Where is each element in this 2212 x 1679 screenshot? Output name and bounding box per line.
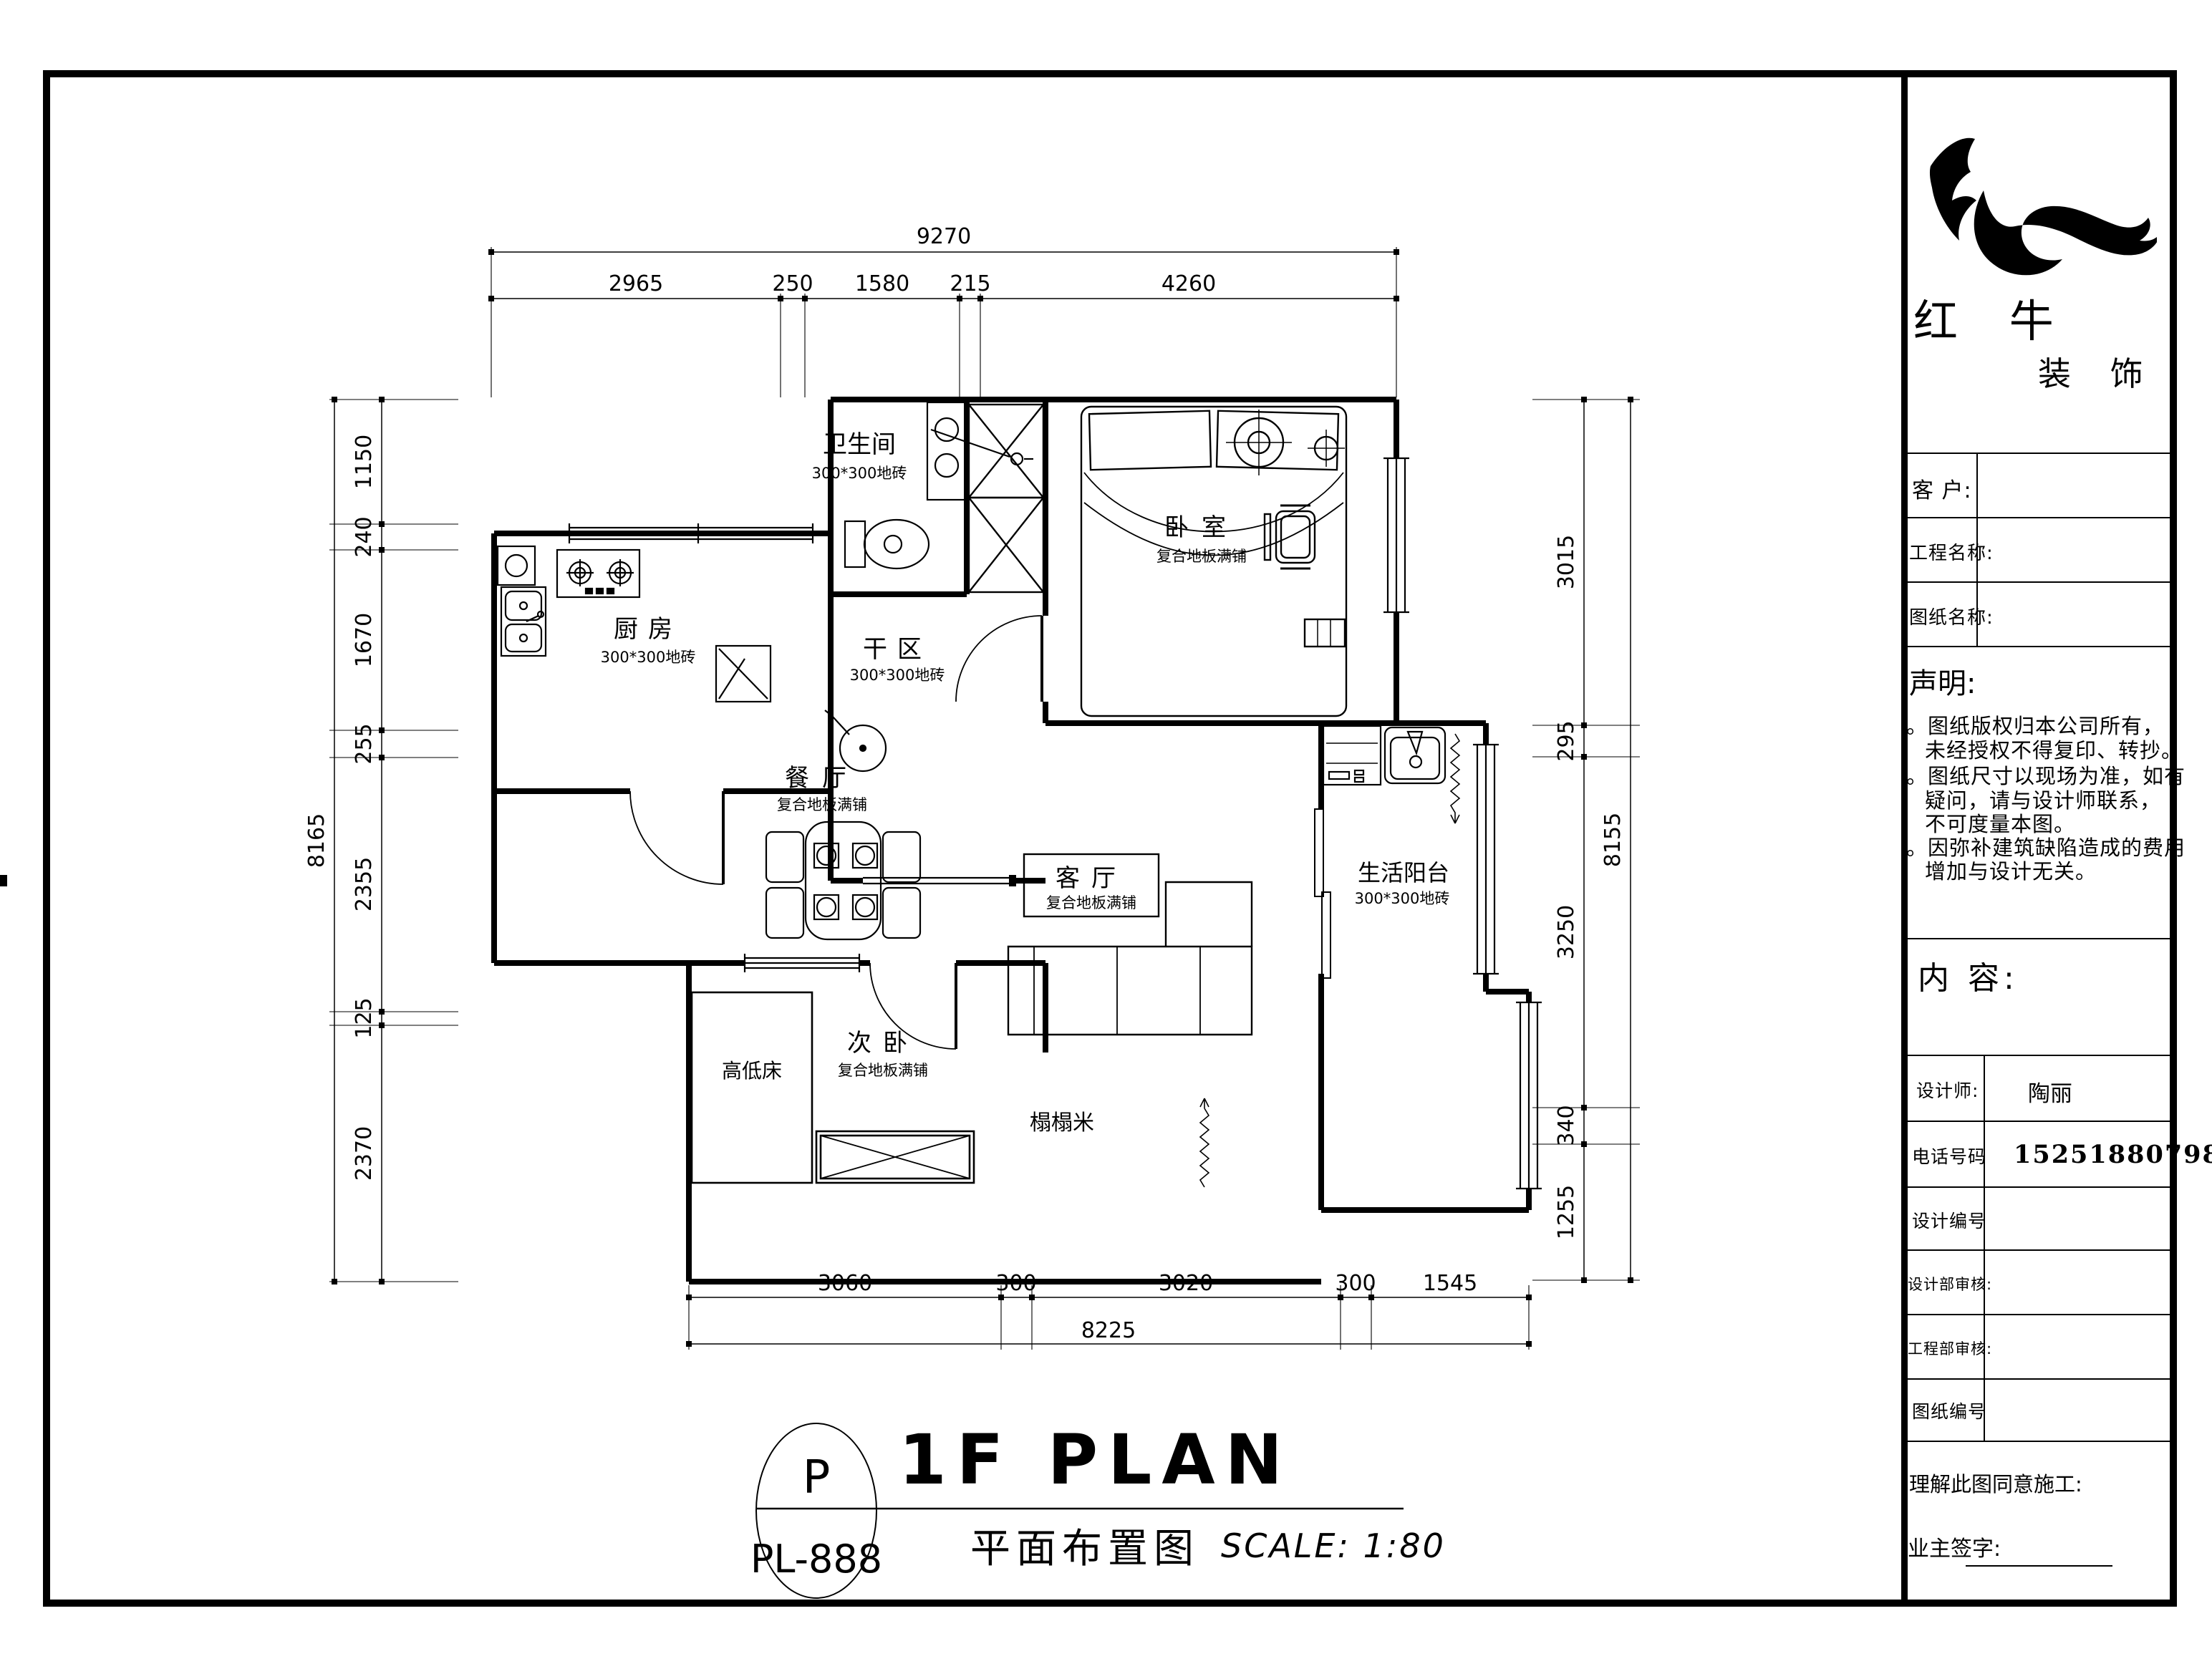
- plan-scale: SCALE: 1:80: [1221, 1526, 1446, 1565]
- room-floor-balcony: 300*300地砖: [1355, 890, 1450, 907]
- room-label-tatami: 榻榻米: [1030, 1111, 1094, 1136]
- plan-title-cn: 平面布置图: [970, 1526, 1199, 1572]
- room-label-dining: 餐厅: [785, 764, 859, 793]
- room-floor-kitchen: 300*300地砖: [601, 649, 696, 666]
- room-floor-dining: 复合地板满铺: [777, 796, 867, 813]
- bottom-rooms-furniture: [692, 992, 1209, 1187]
- pillow: [1089, 411, 1211, 470]
- svg-text:2965: 2965: [609, 271, 663, 296]
- room-label-balcony: 生活阳台: [1358, 859, 1449, 886]
- svg-text:300: 300: [1335, 1271, 1376, 1296]
- dining-chair: [766, 832, 803, 882]
- shower-arm: [931, 430, 1010, 457]
- svg-text:3015: 3015: [1554, 535, 1579, 589]
- room-floor-bedroom: 复合地板满铺: [1156, 548, 1247, 565]
- room-label-kitchen: 厨房: [614, 615, 682, 644]
- svg-text:240: 240: [352, 516, 377, 557]
- dim-right-total: 8155: [1600, 813, 1626, 867]
- svg-text:125: 125: [352, 997, 377, 1038]
- kitchen-flue: [498, 546, 535, 585]
- svg-text:300: 300: [995, 1271, 1036, 1296]
- room-floor-dry: 300*300地砖: [850, 667, 945, 684]
- svg-text:2355: 2355: [352, 857, 377, 911]
- bath-vanity: [927, 402, 967, 500]
- svg-text:4260: 4260: [1161, 271, 1216, 296]
- svg-text:1150: 1150: [352, 435, 377, 489]
- dining-chair: [883, 888, 920, 938]
- dry-area-basin: [825, 710, 886, 771]
- svg-text:2370: 2370: [352, 1126, 377, 1181]
- desk-edge: [1265, 514, 1270, 560]
- svg-text:340: 340: [1554, 1105, 1579, 1146]
- walls: [494, 400, 1529, 1282]
- svg-text:3020: 3020: [1159, 1271, 1213, 1296]
- dimension-lines: [329, 247, 1640, 1350]
- sheet-code-letter: P: [803, 1451, 831, 1504]
- svg-text:295: 295: [1554, 720, 1579, 761]
- svg-text:1255: 1255: [1554, 1185, 1579, 1239]
- tap: [1408, 732, 1422, 753]
- sofa-chaise: [1166, 882, 1252, 947]
- dim-left-total: 8165: [304, 813, 329, 868]
- room-label-bedroom: 卧室: [1164, 513, 1239, 542]
- floorplan-canvas: 卫生间 300*300地砖 干区 300*300地砖 厨房 300*300地砖 …: [0, 0, 2212, 1679]
- room-floor-bath: 300*300地砖: [812, 465, 907, 482]
- room-label-living: 客厅: [1056, 864, 1127, 893]
- room-label-bath: 卫生间: [823, 430, 896, 459]
- svg-text:1545: 1545: [1423, 1271, 1477, 1296]
- washing-machine: [1323, 726, 1381, 785]
- room-label-second: 次卧: [847, 1029, 919, 1058]
- dimension-ticks: [332, 249, 1633, 1347]
- svg-text:3250: 3250: [1554, 905, 1579, 959]
- bunk-bed: [692, 992, 812, 1183]
- threshold-step: [1305, 619, 1345, 647]
- svg-text:1670: 1670: [352, 613, 377, 667]
- balcony-fixtures: [1323, 726, 1459, 823]
- dim-bottom-total: 8225: [1081, 1318, 1136, 1343]
- dining-chair: [766, 888, 803, 938]
- room-floor-living: 复合地板满铺: [1046, 894, 1136, 911]
- dining-chair: [883, 832, 920, 882]
- plan-title-en: 1F PLAN: [899, 1420, 1293, 1500]
- room-label-dry: 干区: [863, 635, 932, 664]
- room-label-bunk: 高低床: [722, 1059, 782, 1083]
- svg-text:215: 215: [950, 271, 990, 296]
- sheet-code: PL-888: [750, 1537, 882, 1582]
- room-floor-second: 复合地板满铺: [838, 1062, 928, 1079]
- dim-top-total: 9270: [917, 224, 971, 249]
- svg-text:255: 255: [352, 723, 377, 764]
- svg-text:1580: 1580: [855, 271, 909, 296]
- door-symbols: [630, 616, 1330, 1049]
- toilet-bowl: [864, 520, 929, 568]
- drain-slope-arrow: [1451, 734, 1459, 823]
- drain-slope-arrow: [1200, 1098, 1209, 1187]
- svg-text:250: 250: [772, 271, 813, 296]
- svg-text:3060: 3060: [818, 1271, 872, 1296]
- kitchen-sink: [501, 587, 546, 656]
- bedroom-wardrobe: [969, 405, 1043, 592]
- drawing-title: P PL-888 1F PLAN 平面布置图 SCALE: 1:80: [750, 1420, 1446, 1598]
- toilet-tank: [845, 521, 865, 567]
